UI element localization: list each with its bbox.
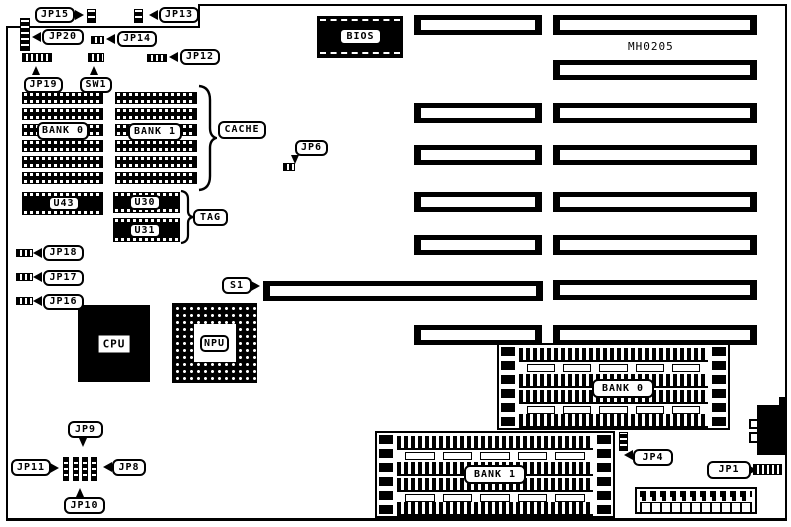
jp6-label: JP6 [295,140,328,156]
cpu-chip: CPU [78,305,150,382]
pointer [50,463,59,473]
simm-latch [597,435,611,514]
cache-chip [22,156,103,168]
power-connector [635,487,757,514]
cache-chip [22,172,103,184]
jp17-connector [16,273,33,281]
jumper-cluster-pin [73,457,79,481]
jp4-label: JP4 [633,449,673,466]
cache-chip [115,156,197,168]
s1-label: S1 [222,277,252,294]
s1-slot [263,281,543,301]
pointer [76,488,84,497]
pointer [33,272,42,282]
jumper-cluster-pin [82,457,88,481]
pointer [79,438,87,447]
jp16-connector [16,297,33,305]
cache-chip [115,172,197,184]
simm-latch [712,347,726,426]
board-border-left [6,26,8,520]
cache-chip [22,108,103,120]
board-border-top-left [6,26,200,28]
simm-socket [519,414,708,428]
pointer [291,155,299,164]
expansion-slot [553,280,757,300]
expansion-slot [553,325,757,345]
board-border-bottom [6,518,787,521]
pointer [624,450,633,460]
expansion-slot [553,145,757,165]
jp4-connector [619,432,628,451]
board-border-top [198,4,787,6]
jp15-connector [87,9,96,23]
jp1-connector [753,464,782,475]
npu-socket-center: NPU [194,324,236,362]
simm-socket [397,436,593,450]
expansion-slot [553,192,757,212]
jp12-label: JP12 [180,49,220,65]
simm-socket-body [405,452,585,460]
sw1-dip-switch [88,53,104,62]
simm-socket-body [527,364,700,372]
jp6-connector [283,163,295,171]
cache-chip [115,140,197,152]
cache-bank0-label: BANK 0 [37,122,89,140]
u31-label: U31 [129,223,161,238]
pointer [90,66,98,75]
pointer [251,281,260,291]
simm-socket-body [405,494,585,502]
expansion-slot [414,325,542,345]
u30-label: U30 [129,195,161,210]
keyboard-connector-tab [749,432,759,443]
expansion-slot [553,103,757,123]
jp20-connector [20,18,30,51]
cache-label: CACHE [218,121,266,139]
board-part-number: MH0205 [628,40,674,53]
pointer [33,248,42,258]
jp8-label: JP8 [112,459,146,476]
pointer [106,34,115,44]
jp14-label: JP14 [117,31,157,47]
cache-chip [22,140,103,152]
expansion-slot [414,192,542,212]
npu-label: NPU [200,335,229,352]
jp18-label: JP18 [43,245,84,261]
tag-label: TAG [193,209,228,226]
simm-latch [501,347,515,426]
sw1-label: SW1 [80,77,112,93]
pointer [169,52,178,62]
pointer [75,10,84,20]
expansion-slot [553,235,757,255]
simm-socket [397,502,593,516]
expansion-slot [414,235,542,255]
jp19-header [22,53,52,62]
tag-brace-icon [179,189,194,245]
jp13-label: JP13 [159,7,199,23]
jp15-label: JP15 [35,7,75,23]
simm-bank1-label: BANK 1 [464,465,526,484]
jumper-cluster-pin [91,457,97,481]
jp9-label: JP9 [68,421,103,438]
pointer [32,32,41,42]
cache-chip [115,92,197,104]
cache-chip [115,108,197,120]
bios-label: BIOS [339,28,382,45]
jp13-connector [134,9,143,23]
jp10-label: JP10 [64,497,105,514]
cache-bank1-label: BANK 1 [128,123,182,141]
u43-label: U43 [48,196,80,211]
jumper-cluster-pin [63,457,69,481]
pointer [32,66,40,75]
jp18-connector [16,249,33,257]
jp1-label: JP1 [707,461,751,479]
jp12-connector [147,54,167,62]
keyboard-connector [757,405,787,455]
keyboard-connector-tab [749,419,759,429]
pointer [33,296,42,306]
jp11-label: JP11 [11,459,51,476]
simm-bank0-label: BANK 0 [592,379,654,398]
pointer [149,10,158,20]
simm-latch [379,435,393,514]
npu-socket: NPU [172,303,257,383]
expansion-slot [553,60,757,80]
jp16-label: JP16 [43,294,84,310]
expansion-slot [414,103,542,123]
simm-socket [519,348,708,362]
cpu-label: CPU [99,335,130,352]
motherboard-jumper-diagram: JP15 JP13 JP20 JP14 JP12 JP19 SW1 BANK 0… [0,0,791,527]
expansion-slot [414,15,542,35]
jp19-label: JP19 [24,77,63,93]
jp20-label: JP20 [42,29,84,45]
jp14-connector [91,36,104,44]
power-pin-cells [640,502,752,513]
cache-brace-icon [197,84,217,192]
keyboard-connector-notch [779,397,787,406]
cache-chip [22,92,103,104]
simm-socket-body [527,406,700,414]
power-pins [640,497,752,501]
expansion-slot [414,145,542,165]
pointer [103,462,112,472]
jp17-label: JP17 [43,270,84,286]
expansion-slot [553,15,757,35]
